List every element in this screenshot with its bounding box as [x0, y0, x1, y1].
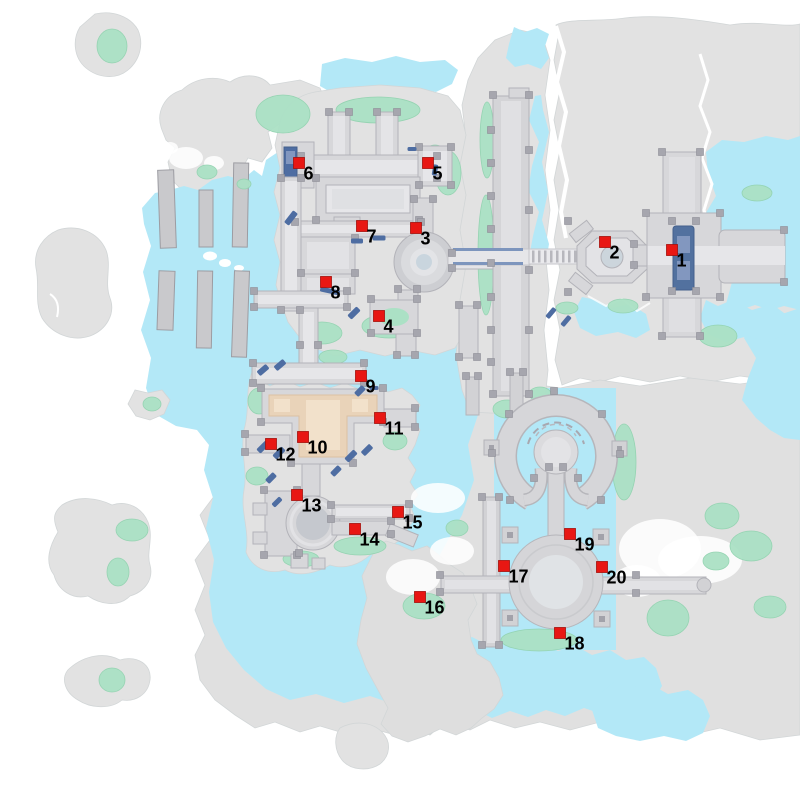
- vegetation-patch: [608, 299, 638, 313]
- structure-node: [412, 405, 419, 412]
- structure-node: [437, 589, 444, 596]
- structure-node: [278, 307, 285, 314]
- structure-node: [352, 270, 359, 277]
- vegetation-patch: [237, 179, 251, 189]
- world-map-image: 1234567891011121314151617181920: [0, 0, 800, 785]
- structure-node: [414, 286, 421, 293]
- structure-node: [693, 218, 700, 225]
- structure-node: [346, 109, 353, 116]
- marker-number: 8: [331, 283, 341, 303]
- lake-islet: [203, 252, 217, 261]
- vegetation-patch: [730, 531, 772, 561]
- structure-node: [489, 450, 496, 457]
- marker-number: 18: [565, 634, 585, 654]
- vegetation-patch: [246, 467, 268, 485]
- structure-node: [633, 572, 640, 579]
- structure-node: [526, 327, 533, 334]
- room-floor: [307, 242, 349, 269]
- vegetation-patch: [319, 350, 347, 364]
- structure-node: [475, 373, 482, 380]
- marker-number: 15: [403, 513, 423, 533]
- structure-node: [488, 327, 495, 334]
- vegetation-patch: [256, 95, 310, 133]
- vegetation-patch: [197, 165, 217, 179]
- structure-node: [643, 210, 650, 217]
- structure-node: [659, 149, 666, 156]
- structure-node: [474, 354, 481, 361]
- marker-number: 4: [384, 317, 394, 337]
- structure-node: [643, 294, 650, 301]
- structure-node: [297, 307, 304, 314]
- structure-node: [437, 572, 444, 579]
- plaza-center: [416, 254, 432, 270]
- plaza-wing-stub: [253, 503, 267, 515]
- structure-node: [669, 218, 676, 225]
- sanctum-bar: [548, 468, 564, 543]
- structure-node: [575, 475, 582, 482]
- sanctum-center-disc: [541, 437, 571, 467]
- structure-node: [416, 182, 423, 189]
- game-world-map: 1234567891011121314151617181920: [0, 0, 800, 785]
- marker-number: 2: [610, 243, 620, 263]
- structure-node: [251, 288, 258, 295]
- structure-node: [394, 352, 401, 359]
- dock-pier: [199, 190, 213, 247]
- structure-node: [313, 217, 320, 224]
- structure-node: [488, 294, 495, 301]
- structure-node: [633, 590, 640, 597]
- dock-pier: [158, 170, 177, 249]
- structure-node: [326, 109, 333, 116]
- marker-number: 19: [575, 535, 595, 555]
- structure-node: [617, 451, 624, 458]
- structure-node: [434, 153, 441, 160]
- structure-node: [380, 385, 387, 392]
- structure-node: [488, 359, 495, 366]
- hall-floor-light: [274, 399, 290, 412]
- structure-node: [449, 250, 456, 257]
- structure-node: [449, 265, 456, 272]
- structure-node: [531, 475, 538, 482]
- structure-node: [315, 342, 322, 349]
- structure-node: [448, 182, 455, 189]
- corridor-floor: [445, 580, 509, 589]
- marker-number: 11: [385, 419, 404, 439]
- structure-node: [296, 550, 303, 557]
- structure-node: [560, 464, 567, 471]
- bridge-ties: [532, 251, 583, 263]
- vegetation-patch: [99, 668, 125, 692]
- isle-bottom-left-star: [49, 499, 151, 604]
- dock-pier: [157, 271, 175, 331]
- structure-node: [496, 494, 503, 501]
- marker-number: 3: [421, 229, 431, 249]
- marker-number: 12: [276, 445, 296, 465]
- structure-node: [526, 391, 533, 398]
- structure-node: [406, 501, 413, 508]
- structure-node: [261, 552, 268, 559]
- blue-gate-accent: [351, 239, 363, 244]
- structure-node: [251, 304, 258, 311]
- fog-patch: [162, 142, 178, 154]
- tower-floor: [381, 116, 393, 160]
- structure-node: [717, 294, 724, 301]
- structure-node: [361, 360, 368, 367]
- stub: [466, 377, 479, 415]
- structure-node: [250, 360, 257, 367]
- vegetation-patch: [107, 558, 129, 586]
- structure-node: [258, 419, 265, 426]
- fog-patch: [386, 559, 440, 595]
- structure-node: [565, 218, 572, 225]
- marker-number: 5: [433, 164, 443, 184]
- structure-node: [298, 270, 305, 277]
- vegetation-patch: [742, 185, 772, 201]
- lake-islet: [234, 265, 244, 271]
- dock-pier: [232, 271, 250, 357]
- structure-node: [717, 210, 724, 217]
- structure-node: [551, 388, 558, 395]
- vegetation-patch: [143, 397, 161, 411]
- vegetation-patch: [699, 325, 737, 347]
- structure-node: [411, 196, 418, 203]
- structure-node: [488, 127, 495, 134]
- corridor-floor: [256, 368, 362, 379]
- structure-node: [526, 267, 533, 274]
- corridor-floor: [487, 501, 496, 643]
- corridor-end: [697, 578, 711, 592]
- structure-node: [479, 642, 486, 649]
- structure-node: [368, 330, 375, 337]
- structure-node: [490, 391, 497, 398]
- structure-node: [488, 260, 495, 267]
- structure-node: [374, 109, 381, 116]
- corridor: [302, 464, 320, 496]
- structure-node: [394, 109, 401, 116]
- structure-node: [697, 149, 704, 156]
- walkway-rail: [453, 248, 523, 251]
- structure-node: [250, 380, 257, 387]
- structure-node: [781, 279, 788, 286]
- vegetation-patch: [97, 29, 127, 63]
- vegetation-patch: [556, 302, 578, 314]
- structure-node: [599, 411, 606, 418]
- vegetation-patch: [116, 519, 148, 541]
- fog-patch: [430, 537, 474, 565]
- structure-node: [395, 286, 402, 293]
- structure-node: [659, 333, 666, 340]
- marker-number: 20: [607, 568, 627, 588]
- long-corridor: [493, 88, 529, 396]
- crossing-floor: [635, 246, 785, 265]
- structure-node: [412, 352, 419, 359]
- hall-floor-light: [352, 399, 368, 412]
- structure-node: [631, 262, 638, 269]
- structure-node: [313, 175, 320, 182]
- structure-node: [488, 160, 495, 167]
- fog-patch: [411, 483, 465, 513]
- structure-node: [368, 296, 375, 303]
- corridor-floor: [501, 101, 521, 391]
- structure-node: [669, 288, 676, 295]
- structure-node: [488, 226, 495, 233]
- structure-node: [490, 92, 497, 99]
- structure-node: [448, 144, 455, 151]
- marker-number: 1: [677, 251, 687, 271]
- structure-node: [414, 296, 421, 303]
- structure-node: [242, 449, 249, 456]
- marker-number: 10: [308, 438, 328, 458]
- structure-node: [328, 502, 335, 509]
- structure-node: [496, 642, 503, 649]
- structure-node: [546, 464, 553, 471]
- structure-node: [328, 516, 335, 523]
- structure-node: [479, 494, 486, 501]
- corridor: [459, 306, 478, 358]
- structure-node: [631, 241, 638, 248]
- structure-node: [344, 304, 351, 311]
- structure-node: [430, 196, 437, 203]
- plaza-wing-stub: [253, 532, 267, 544]
- corridor-floor: [303, 312, 314, 364]
- marker-number: 13: [302, 496, 322, 516]
- structure-node: [388, 531, 395, 538]
- blue-gate-accent: [408, 147, 417, 151]
- vegetation-patch: [446, 520, 468, 536]
- dock-pier: [196, 271, 212, 348]
- tower-floor: [333, 116, 345, 160]
- structure-node: [520, 369, 527, 376]
- structure-node: [278, 175, 285, 182]
- marker-number: 16: [425, 598, 445, 618]
- structure-node: [507, 369, 514, 376]
- structure-node: [598, 497, 605, 504]
- structure-node: [261, 487, 268, 494]
- structure-node: [456, 354, 463, 361]
- structure-node: [507, 497, 514, 504]
- structure-node: [456, 302, 463, 309]
- structure-node: [693, 288, 700, 295]
- vegetation-patch: [705, 503, 739, 529]
- vegetation-patch: [703, 552, 729, 570]
- lake-islet: [219, 259, 231, 267]
- marker-number: 17: [509, 567, 529, 587]
- marker-number: 7: [367, 227, 377, 247]
- structure-node: [474, 302, 481, 309]
- structure-node: [412, 424, 419, 431]
- dock-pier: [232, 163, 248, 247]
- structure-node: [414, 330, 421, 337]
- structure-node: [526, 92, 533, 99]
- structure-node: [344, 288, 351, 295]
- marker-number: 14: [360, 530, 380, 550]
- structure-node: [526, 207, 533, 214]
- structure-node: [781, 227, 788, 234]
- structure-node: [388, 518, 395, 525]
- structure-node: [463, 373, 470, 380]
- isle-left-tall: [36, 228, 112, 338]
- grand-circle-disc: [529, 555, 583, 609]
- structure-node: [526, 147, 533, 154]
- vegetation-patch: [754, 596, 786, 618]
- courtyard-core: [332, 189, 404, 209]
- marker-number: 9: [366, 377, 376, 397]
- structure-node: [488, 193, 495, 200]
- structure-node: [506, 411, 513, 418]
- structure-node: [565, 289, 572, 296]
- central-top-pond: [506, 27, 549, 69]
- structure-node: [416, 144, 423, 151]
- corridor-floor: [305, 160, 433, 174]
- vegetation-patch: [647, 600, 689, 636]
- structure-node: [297, 342, 304, 349]
- structure-node: [242, 431, 249, 438]
- south-stub: [312, 558, 325, 569]
- structure-node: [258, 385, 265, 392]
- structure-node: [697, 333, 704, 340]
- corridor-floor: [285, 181, 297, 307]
- marker-number: 6: [304, 164, 314, 184]
